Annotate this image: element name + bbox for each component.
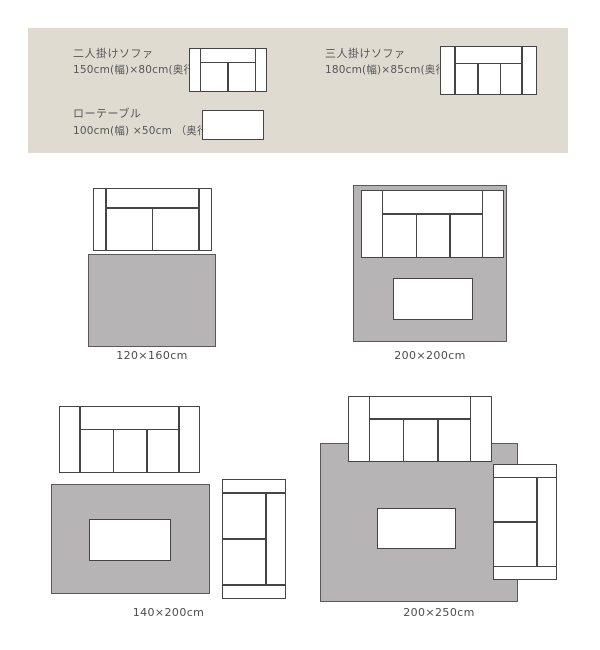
- sofa-armrest-line: [369, 397, 371, 461]
- sofa-armrest-line: [521, 47, 523, 94]
- rug-size-guide: 二人掛けソファ 150cm(幅)×80cm(奥行) 三人掛けソファ 180cm(…: [0, 0, 600, 650]
- three-seater-sofa: [59, 406, 200, 473]
- diagram-label: 200×200cm: [353, 349, 507, 362]
- low-table: [393, 278, 473, 320]
- sofa-armrest-line: [198, 189, 200, 250]
- sofa-armrest-line: [494, 477, 556, 479]
- three-seater-sofa: [361, 190, 504, 258]
- sofa-seat-divider-line: [403, 418, 405, 461]
- legend-low-table-name: ローテーブル: [73, 105, 141, 121]
- sofa-seat-divider-line: [494, 521, 538, 523]
- two-seater-sofa-rotated: [493, 464, 557, 580]
- sofa-backrest-line: [369, 418, 471, 420]
- sofa-seat-divider-line: [223, 538, 267, 540]
- sofa-armrest-line: [223, 492, 285, 494]
- sofa-seat-divider-line: [146, 429, 148, 472]
- sofa-armrest-line: [482, 191, 484, 257]
- sofa-armrest-line: [494, 566, 556, 568]
- legend-low-table-size: 100cm(幅) ×50cm （奥行）: [73, 123, 218, 138]
- sofa-seat-divider-line: [500, 63, 502, 94]
- sofa-seat-divider-line: [416, 213, 418, 257]
- three-seater-sofa-icon: [440, 46, 537, 95]
- two-seater-sofa: [93, 188, 212, 251]
- sofa-armrest-line: [255, 49, 257, 91]
- legend-three-seater-size: 180cm(幅)×85cm(奥行): [325, 62, 451, 77]
- sofa-seat-divider-line: [449, 213, 451, 257]
- three-seater-sofa: [348, 396, 492, 462]
- sofa-armrest-line: [178, 407, 180, 472]
- sofa-armrest-line: [470, 397, 472, 461]
- sofa-backrest-line: [79, 429, 179, 431]
- diagram-label: 140×200cm: [51, 606, 286, 619]
- sofa-seat-divider-line: [437, 418, 439, 461]
- legend-two-seater-size: 150cm(幅)×80cm(奥行): [73, 62, 199, 77]
- two-seater-sofa-rotated: [222, 479, 286, 599]
- sofa-armrest-line: [382, 191, 384, 257]
- sofa-armrest-line: [454, 47, 456, 94]
- low-table-icon: [202, 110, 264, 140]
- sofa-seat-divider-line: [477, 63, 479, 94]
- diagram-label: 120×160cm: [88, 349, 216, 362]
- sofa-backrest-line: [382, 213, 484, 215]
- two-seater-sofa-icon: [189, 48, 267, 92]
- sofa-armrest-line: [223, 584, 285, 586]
- legend-three-seater-name: 三人掛けソファ: [325, 45, 406, 61]
- rug-120x160: [88, 254, 216, 347]
- sofa-armrest-line: [79, 407, 81, 472]
- low-table: [377, 508, 456, 549]
- sofa-armrest-line: [200, 49, 202, 91]
- diagram-label: 200×250cm: [320, 606, 558, 619]
- sofa-seat-divider-line: [113, 429, 115, 472]
- sofa-seat-divider-line: [227, 62, 229, 91]
- legend-two-seater-name: 二人掛けソファ: [73, 45, 154, 61]
- low-table: [89, 519, 171, 561]
- sofa-seat-divider-line: [152, 207, 154, 250]
- sofa-armrest-line: [105, 189, 107, 250]
- sofa-backrest-line: [454, 63, 522, 65]
